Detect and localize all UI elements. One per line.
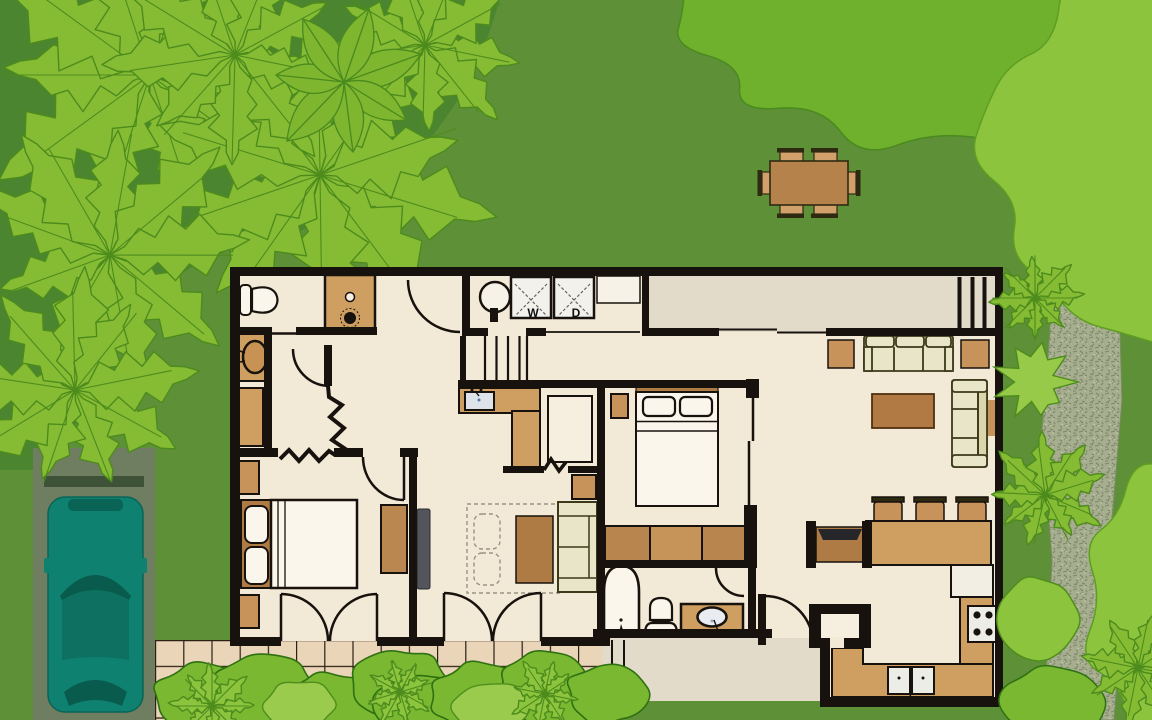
svg-text:W: W: [527, 306, 539, 320]
svg-text:D: D: [572, 306, 581, 320]
